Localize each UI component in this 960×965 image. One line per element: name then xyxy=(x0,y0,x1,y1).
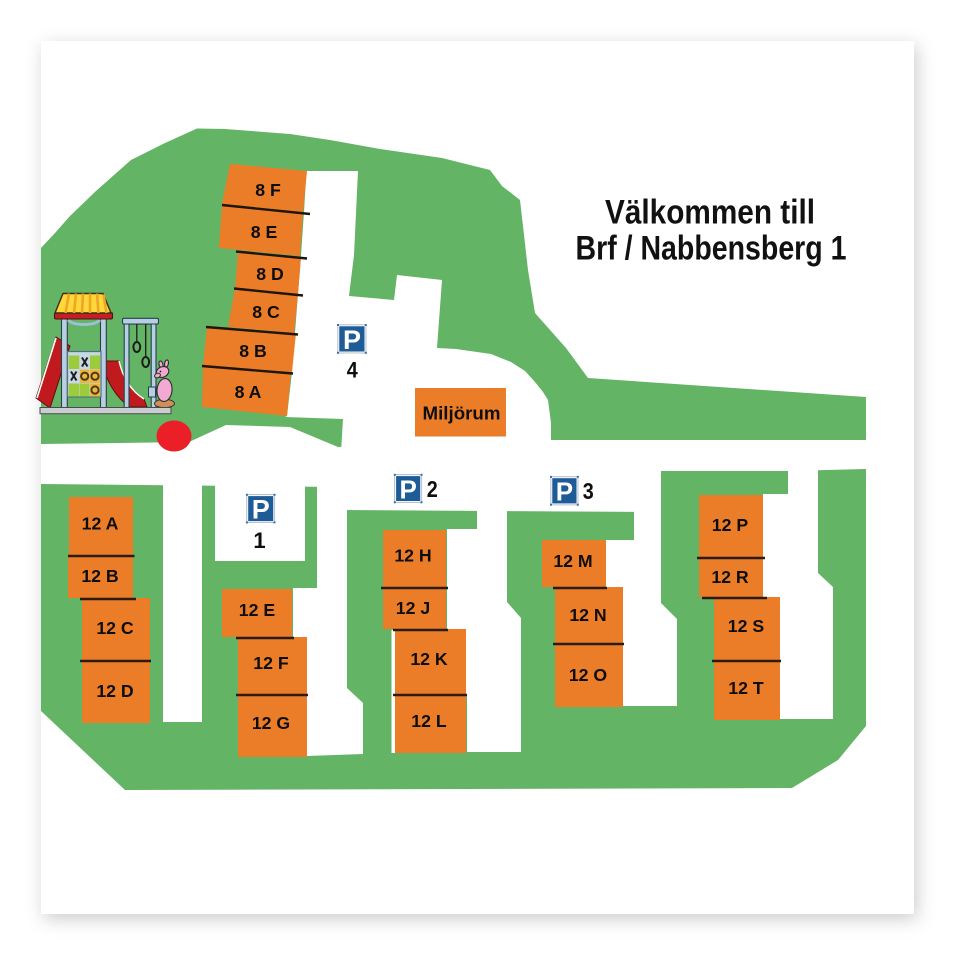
svg-text:1: 1 xyxy=(253,528,265,553)
svg-text:12 T: 12 T xyxy=(728,678,764,698)
svg-text:8 D: 8 D xyxy=(256,264,284,284)
svg-text:12 E: 12 E xyxy=(239,600,276,620)
svg-text:2: 2 xyxy=(427,476,438,502)
svg-text:12 P: 12 P xyxy=(712,515,749,535)
svg-text:12 C: 12 C xyxy=(96,618,134,638)
svg-text:Välkommen till: Välkommen till xyxy=(605,194,815,232)
svg-text:12 A: 12 A xyxy=(82,514,119,534)
svg-text:Brf / Nabbensberg 1: Brf / Nabbensberg 1 xyxy=(576,230,847,268)
svg-text:12 J: 12 J xyxy=(396,598,430,618)
svg-text:P: P xyxy=(252,495,270,525)
svg-text:8 C: 8 C xyxy=(252,302,280,322)
svg-text:P: P xyxy=(556,477,573,507)
svg-text:12 R: 12 R xyxy=(711,567,749,587)
svg-text:12 O: 12 O xyxy=(569,665,608,685)
svg-text:12 M: 12 M xyxy=(553,551,592,571)
svg-text:8 B: 8 B xyxy=(239,341,267,361)
svg-text:P: P xyxy=(343,325,361,355)
svg-text:P: P xyxy=(400,474,417,504)
svg-text:8 E: 8 E xyxy=(251,222,278,242)
svg-text:8 A: 8 A xyxy=(235,382,262,402)
svg-text:3: 3 xyxy=(583,478,594,504)
svg-text:12 F: 12 F xyxy=(253,653,289,673)
svg-text:12 K: 12 K xyxy=(410,649,448,669)
svg-text:12 G: 12 G xyxy=(252,713,290,733)
svg-text:12 L: 12 L xyxy=(411,711,447,731)
svg-text:12 B: 12 B xyxy=(81,566,118,586)
svg-text:8 F: 8 F xyxy=(255,180,281,200)
svg-text:12 S: 12 S xyxy=(728,616,765,636)
svg-text:12 H: 12 H xyxy=(394,546,431,566)
svg-text:Miljörum: Miljörum xyxy=(423,403,501,424)
svg-text:4: 4 xyxy=(347,358,359,383)
svg-text:12 N: 12 N xyxy=(569,605,606,625)
svg-text:12 D: 12 D xyxy=(96,681,134,701)
